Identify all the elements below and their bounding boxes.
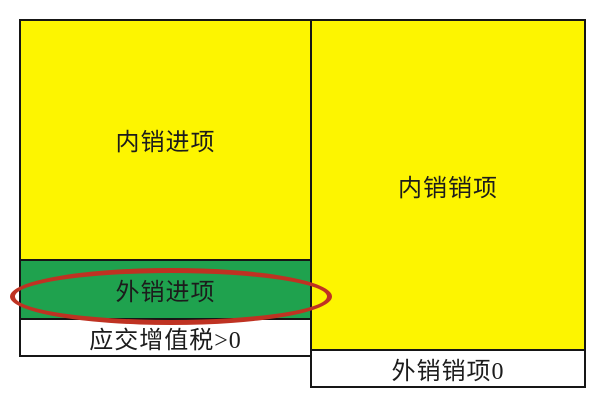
- domestic-output-region: 内销销项: [312, 21, 584, 349]
- vat-payable-label: 应交增值税>0: [89, 320, 242, 355]
- domestic-output-label: 内销销项: [398, 168, 498, 203]
- highlight-ellipse-annotation: [10, 268, 332, 325]
- vat-payable-region: 应交增值税>0: [21, 320, 310, 355]
- diagram-canvas: 内销进项 外销进项 应交增值税>0 内销销项 外销销项0: [0, 0, 600, 405]
- right-column-box: 内销销项 外销销项0: [310, 19, 586, 388]
- domestic-input-label: 内销进项: [116, 122, 216, 157]
- export-output-region: 外销销项0: [312, 349, 584, 386]
- domestic-input-region: 内销进项: [21, 21, 310, 259]
- export-output-label: 外销销项0: [392, 351, 505, 386]
